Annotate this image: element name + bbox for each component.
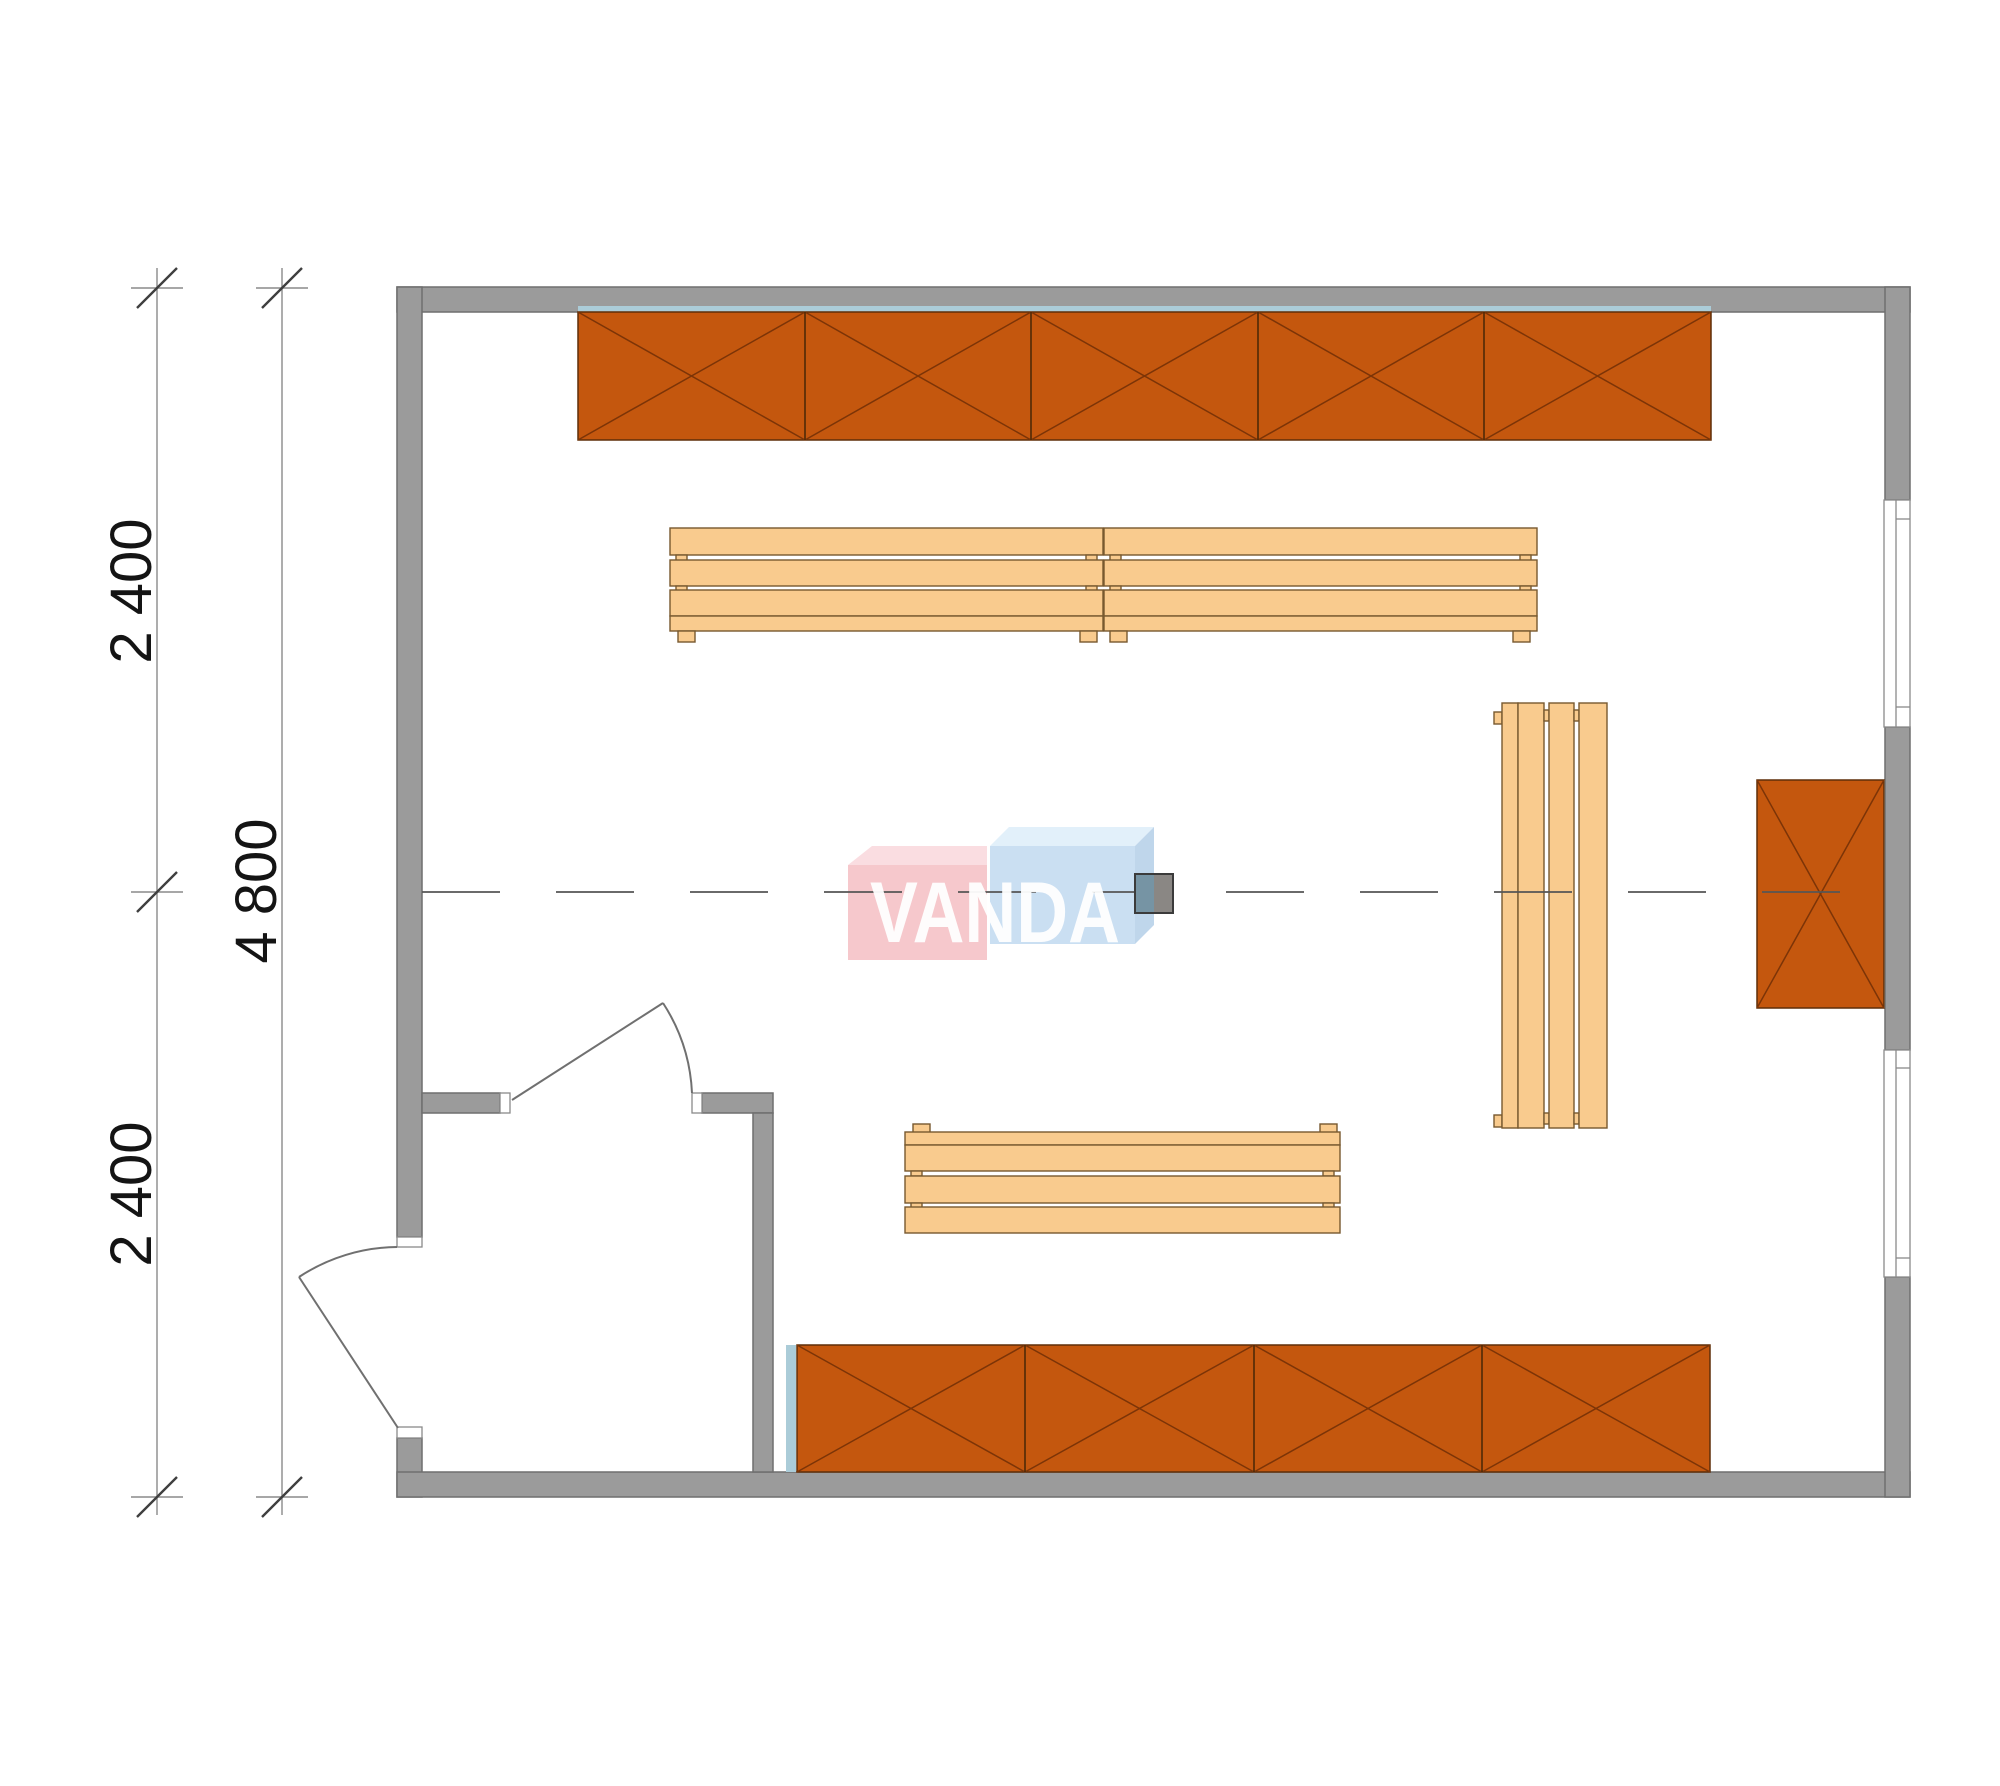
entrance-door-frame-top (397, 1237, 422, 1247)
stove-symbol (1135, 874, 1173, 913)
vanda-watermark-text: VANDA (870, 865, 1120, 961)
strip-top (578, 306, 1711, 312)
wall-right-lower (1885, 1277, 1910, 1497)
interior-door-leaf (512, 1003, 663, 1100)
bench-bottom (905, 1124, 1340, 1233)
dimension-label-bottom-2400: 2 400 (99, 1121, 164, 1266)
vestibule-wall-horizontal-left (422, 1093, 500, 1113)
floor-plan-drawing: 2 400 4 800 2 400 (0, 0, 2000, 1786)
wall-left-upper (397, 287, 422, 1237)
shelf-edge-strips (578, 306, 1885, 1472)
bench-top-left (670, 528, 1103, 642)
entrance-door-frame-bottom (397, 1427, 422, 1438)
entrance-door-swing-arc (299, 1247, 397, 1277)
bench-right-vertical (1494, 703, 1607, 1128)
dimension-label-top-2400: 2 400 (99, 518, 164, 663)
vestibule-wall-horizontal-right (702, 1093, 773, 1113)
door-swings (299, 1003, 692, 1428)
watermark-blue-box-top (990, 827, 1154, 846)
interior-door-swing-arc (663, 1003, 692, 1093)
bench-top-right (1104, 528, 1537, 642)
window-upper (1884, 500, 1910, 727)
wall-right-upper (1885, 287, 1910, 500)
watermark-pink-box-top (848, 846, 987, 865)
stove-left-half (1135, 874, 1154, 913)
interior-door-frame-right (692, 1093, 702, 1113)
wall-right-pier (1885, 727, 1910, 1050)
floor-plan-canvas: 2 400 4 800 2 400 (0, 0, 2000, 1786)
strip-bottom-left (786, 1345, 796, 1472)
door-frames (397, 1093, 702, 1438)
window-lower (1884, 1050, 1910, 1277)
entrance-door-leaf (299, 1277, 398, 1428)
dimension-label-overall-4800: 4 800 (224, 818, 289, 963)
wall-bottom (397, 1472, 1910, 1497)
interior-door-frame-left (500, 1093, 510, 1113)
vestibule-wall-vertical (753, 1113, 773, 1472)
stove-right-half (1154, 874, 1173, 913)
